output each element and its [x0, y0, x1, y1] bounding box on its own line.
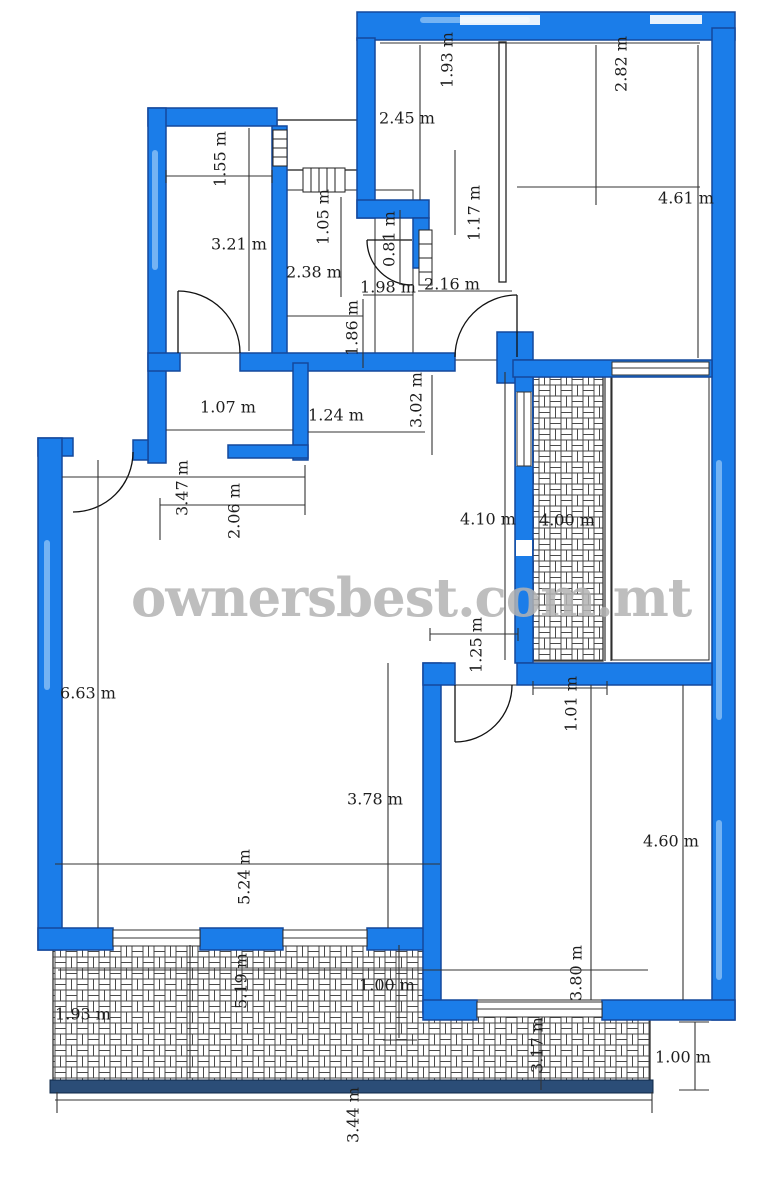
dim-label: 6.63 m	[60, 684, 116, 703]
wall-bedroom-bottom-b	[602, 1000, 735, 1020]
dim-label: 3.17 m	[528, 1017, 547, 1073]
dim-label: 4.61 m	[658, 189, 714, 208]
windows	[113, 15, 709, 1017]
watermark: ownersbest.com.mt	[131, 567, 691, 629]
wall-hall-top-a	[148, 353, 180, 371]
window-shaft-left	[273, 130, 287, 166]
door-living	[73, 452, 133, 512]
wall-stub-left	[133, 440, 148, 460]
dim-label: 1.05 m	[314, 189, 333, 245]
wall-bedroom-left	[423, 663, 441, 1013]
dim-label: 5.19 m	[232, 953, 251, 1009]
window-living-1	[113, 930, 200, 946]
dim-label: 1.86 m	[343, 300, 362, 356]
dim-label: 1.93 m	[438, 32, 457, 88]
wall-bedroom-top-a	[423, 663, 455, 685]
dim-label: 1.17 m	[465, 185, 484, 241]
stud-partition	[499, 42, 506, 282]
dim-label: 2.06 m	[225, 483, 244, 539]
dim-label: 1.55 m	[211, 131, 230, 187]
dim-label: 2.45 m	[379, 109, 435, 128]
dim-label: 4.10 m	[460, 510, 516, 529]
dim-label: 3.44 m	[344, 1087, 363, 1143]
dim-label: 1.00 m	[359, 976, 415, 995]
terrace-window-gap	[516, 540, 532, 556]
wall-bottom-a	[38, 928, 113, 950]
dim-label: 3.80 m	[567, 945, 586, 1001]
walls	[38, 12, 735, 1020]
dim-label: 1.07 m	[200, 398, 256, 417]
wall-topleft-top	[148, 108, 277, 126]
dim-label: 3.47 m	[173, 460, 192, 516]
wall-bedroom-top-b	[517, 663, 712, 685]
wall-hall-south	[228, 445, 308, 458]
dim-label: 3.78 m	[347, 790, 403, 809]
window-shaft-bottom	[303, 168, 345, 192]
dim-label: 1.24 m	[308, 406, 364, 425]
dim-label: 4.60 m	[643, 832, 699, 851]
shaft-box	[277, 120, 360, 170]
wall-left	[38, 438, 62, 950]
dim-label: 2.82 m	[612, 36, 631, 92]
dim-label: 3.02 m	[407, 372, 426, 428]
dim-label: 1.00 m	[655, 1048, 711, 1067]
dim-label: 4.00 m	[539, 511, 595, 530]
dim-label: 2.38 m	[286, 263, 342, 282]
dim-label: 0.81 m	[380, 211, 399, 267]
floorplan-canvas: 1.93 m 2.82 m 2.45 m 4.61 m 1.55 m 3.21 …	[0, 0, 760, 1200]
wall-highlights	[44, 17, 722, 980]
wall-topright-left	[357, 38, 375, 218]
dim-label: 2.16 m	[424, 275, 480, 294]
window-bedroom	[477, 1002, 602, 1017]
door-bedroom	[455, 685, 512, 742]
window-living-2	[283, 930, 367, 946]
terrace-areas	[50, 377, 653, 1093]
door-topleft-room	[178, 291, 240, 353]
dim-label: 1.93 m	[55, 1005, 111, 1024]
window-top-1	[460, 15, 540, 25]
wall-bedroom-bottom-a	[423, 1000, 477, 1020]
wall-bottom-b	[200, 928, 283, 950]
dim-label: 5.24 m	[235, 849, 254, 905]
dim-label: 1.98 m	[360, 278, 416, 297]
window-top-2	[650, 15, 702, 24]
wall-right	[712, 28, 735, 1020]
dim-label: 1.01 m	[562, 676, 581, 732]
window-rightmid	[612, 362, 709, 375]
dim-label: 3.21 m	[211, 235, 267, 254]
